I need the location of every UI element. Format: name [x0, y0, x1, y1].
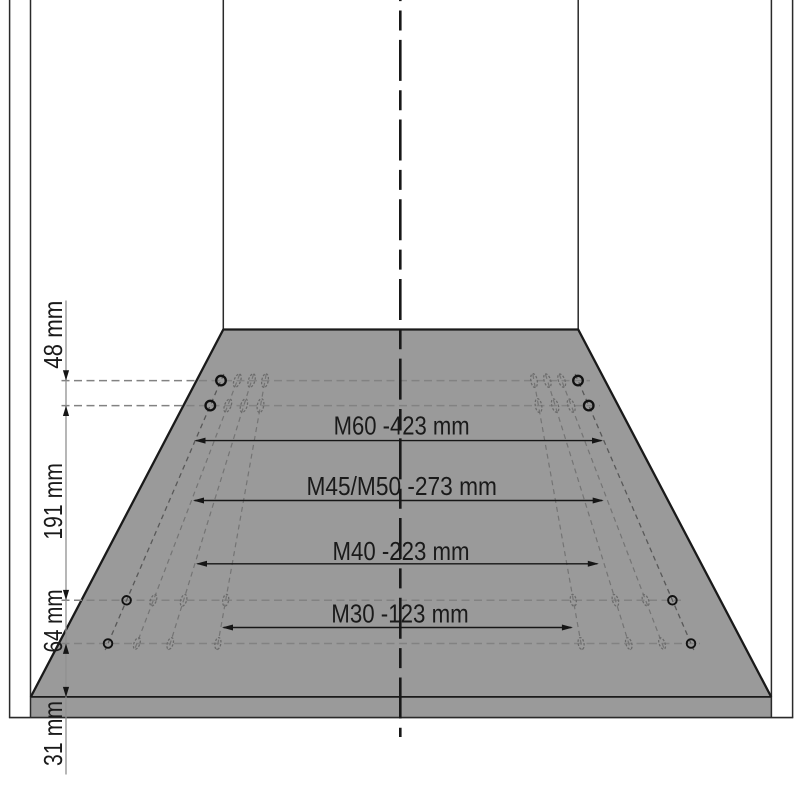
svg-text:191 mm: 191 mm: [38, 463, 68, 540]
svg-text:31 mm: 31 mm: [38, 701, 68, 766]
svg-text:M45/M50 -273 mm: M45/M50 -273 mm: [306, 471, 497, 501]
svg-text:64 mm: 64 mm: [38, 590, 68, 653]
svg-text:M60 -423 mm: M60 -423 mm: [334, 411, 470, 441]
svg-text:M40 -223 mm: M40 -223 mm: [333, 536, 470, 566]
svg-text:M30 -123 mm: M30 -123 mm: [331, 599, 469, 629]
svg-text:48 mm: 48 mm: [38, 301, 68, 369]
